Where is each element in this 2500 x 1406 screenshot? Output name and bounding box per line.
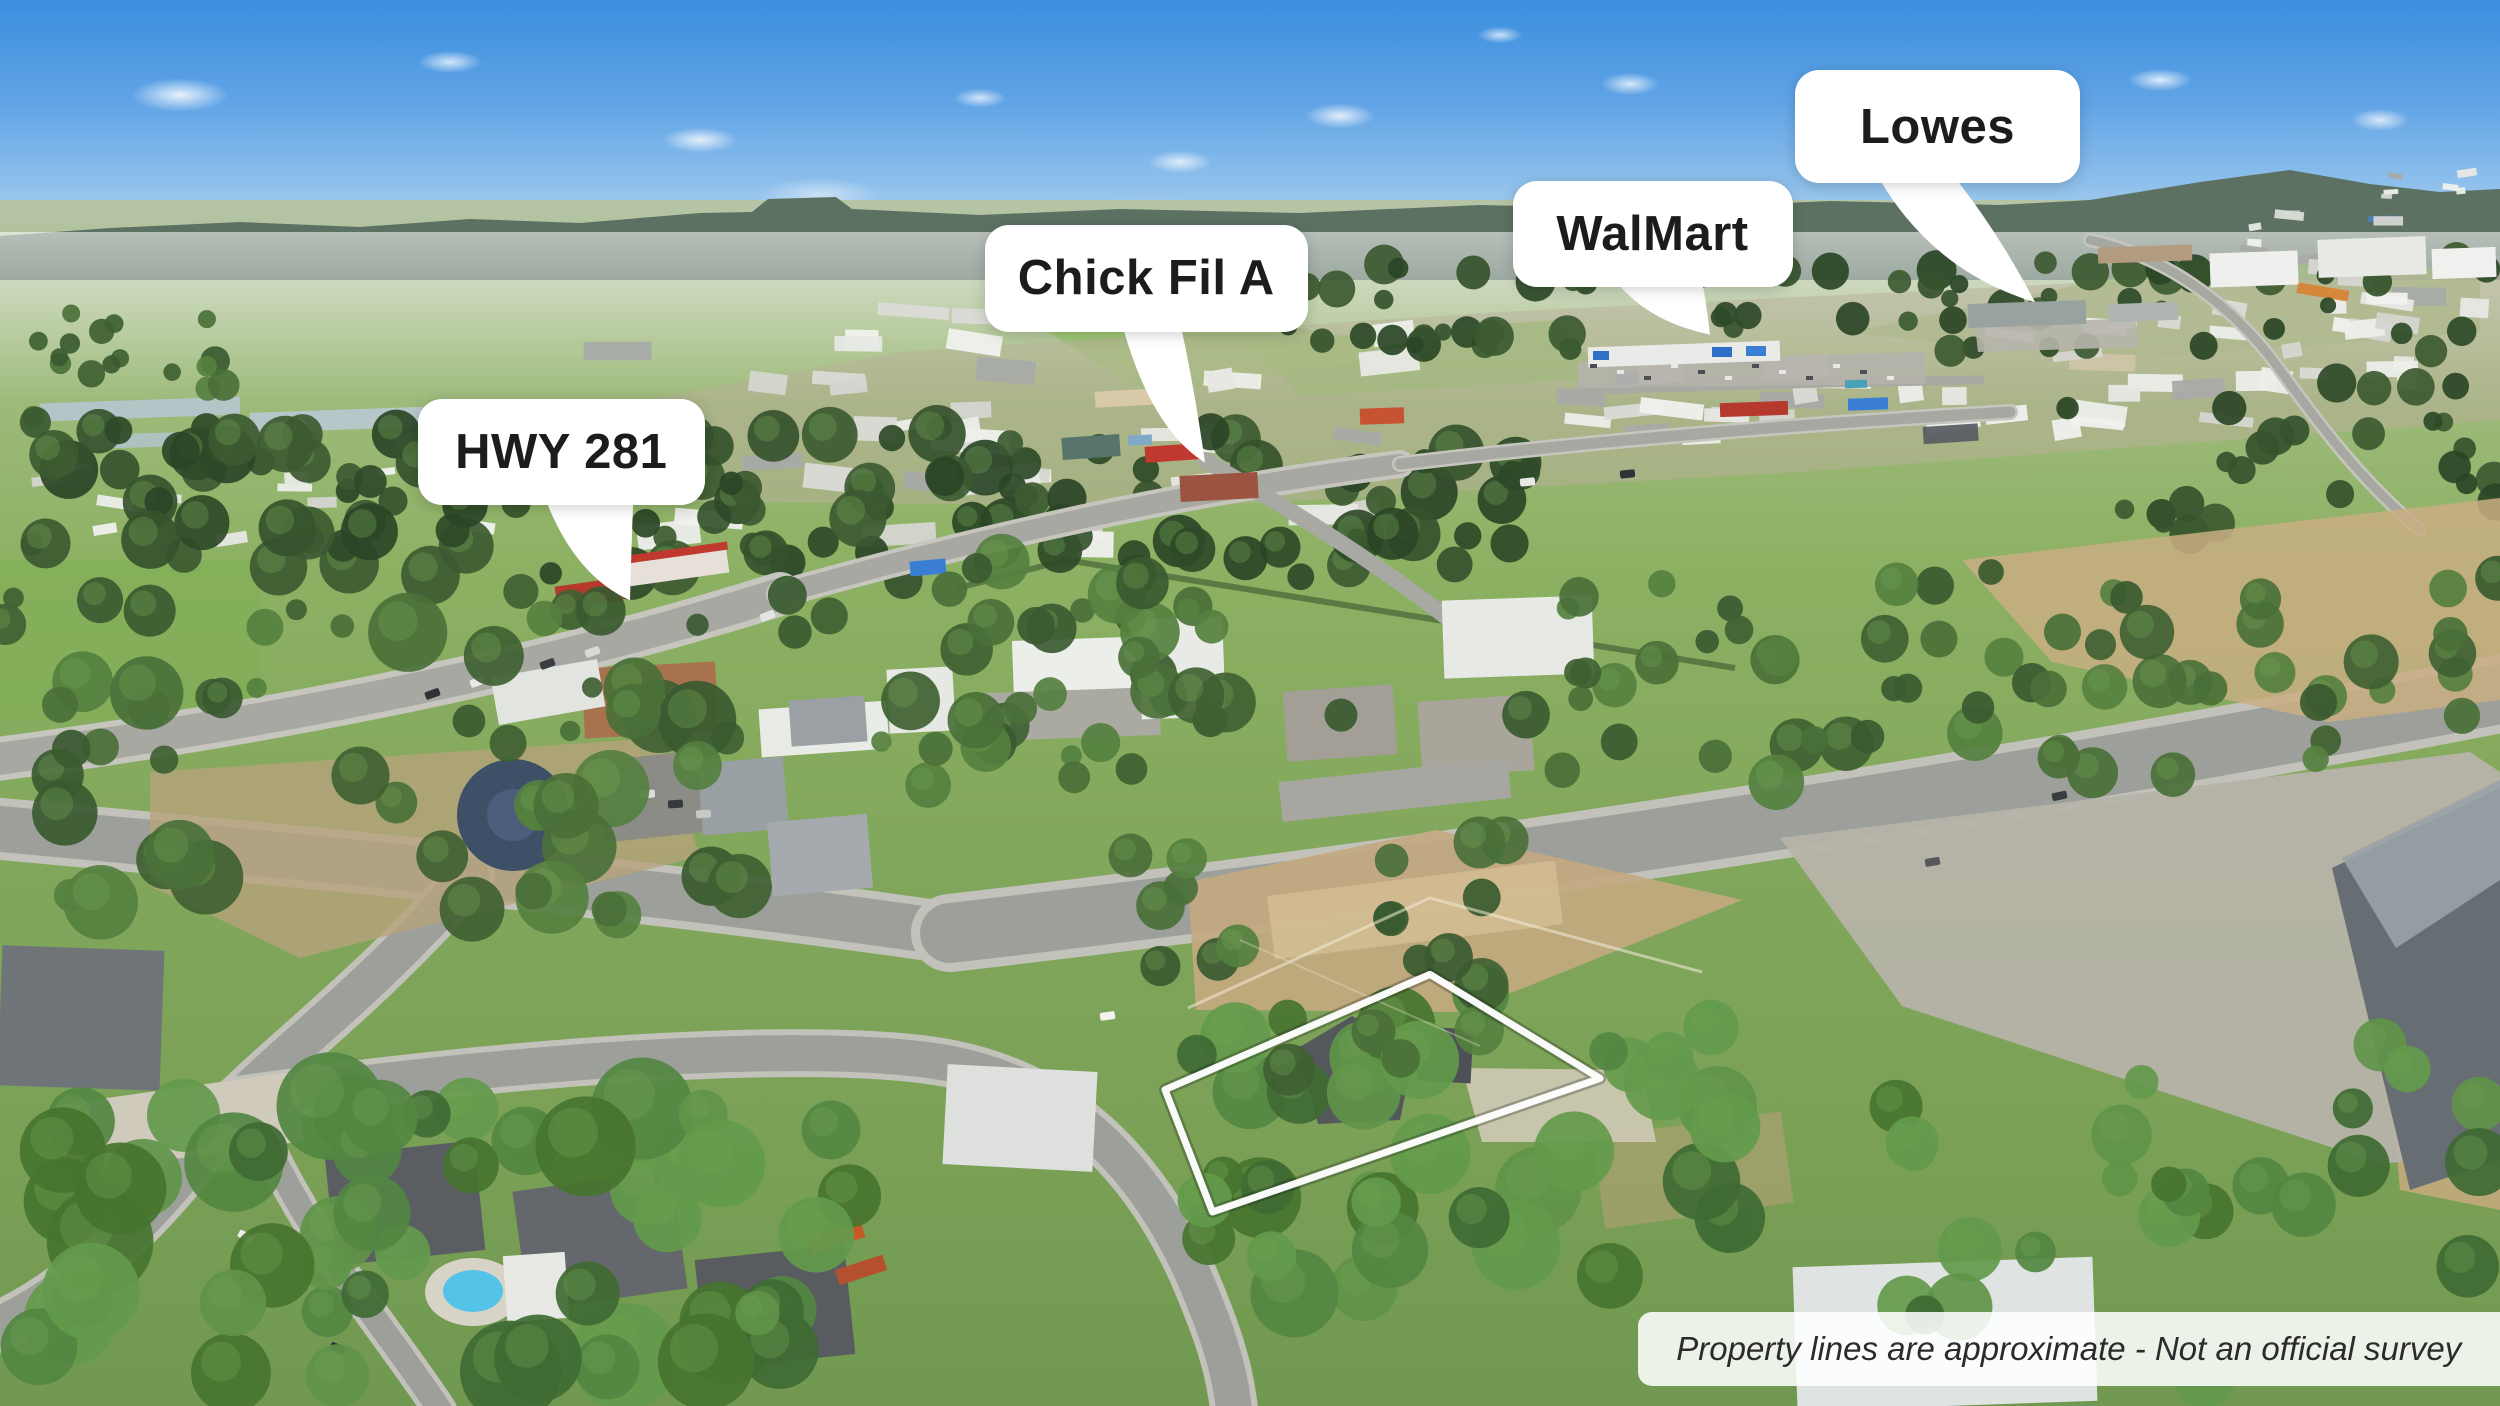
callout-label-lowes: Lowes xyxy=(1860,99,2015,155)
annotation-overlay xyxy=(0,0,2500,1406)
property-boundary-shadow xyxy=(1165,974,1600,1212)
callout-tail-lowes xyxy=(1881,181,2036,303)
callout-walmart: WalMart xyxy=(1513,181,1793,286)
callout-hwy-281: HWY 281 xyxy=(418,399,706,504)
property-boundary-line xyxy=(1165,974,1600,1212)
callout-lowes: Lowes xyxy=(1795,70,2080,182)
aerial-property-photo: HWY 281 Chick Fil A WalMart Lowes Proper… xyxy=(0,0,2500,1406)
callout-tail-walmart xyxy=(1619,285,1710,335)
callout-chick-fil-a: Chick Fil A xyxy=(985,225,1308,332)
callout-label-hwy-281: HWY 281 xyxy=(455,424,667,480)
callout-tail-chick-fil-a xyxy=(1124,330,1205,463)
callout-label-walmart: WalMart xyxy=(1556,206,1748,262)
survey-disclaimer-bar: Property lines are approximate - Not an … xyxy=(1638,1312,2500,1387)
survey-disclaimer-text: Property lines are approximate - Not an … xyxy=(1676,1330,2461,1368)
callout-tail-hwy-281 xyxy=(547,503,633,601)
callout-label-chick-fil-a: Chick Fil A xyxy=(1018,250,1275,306)
